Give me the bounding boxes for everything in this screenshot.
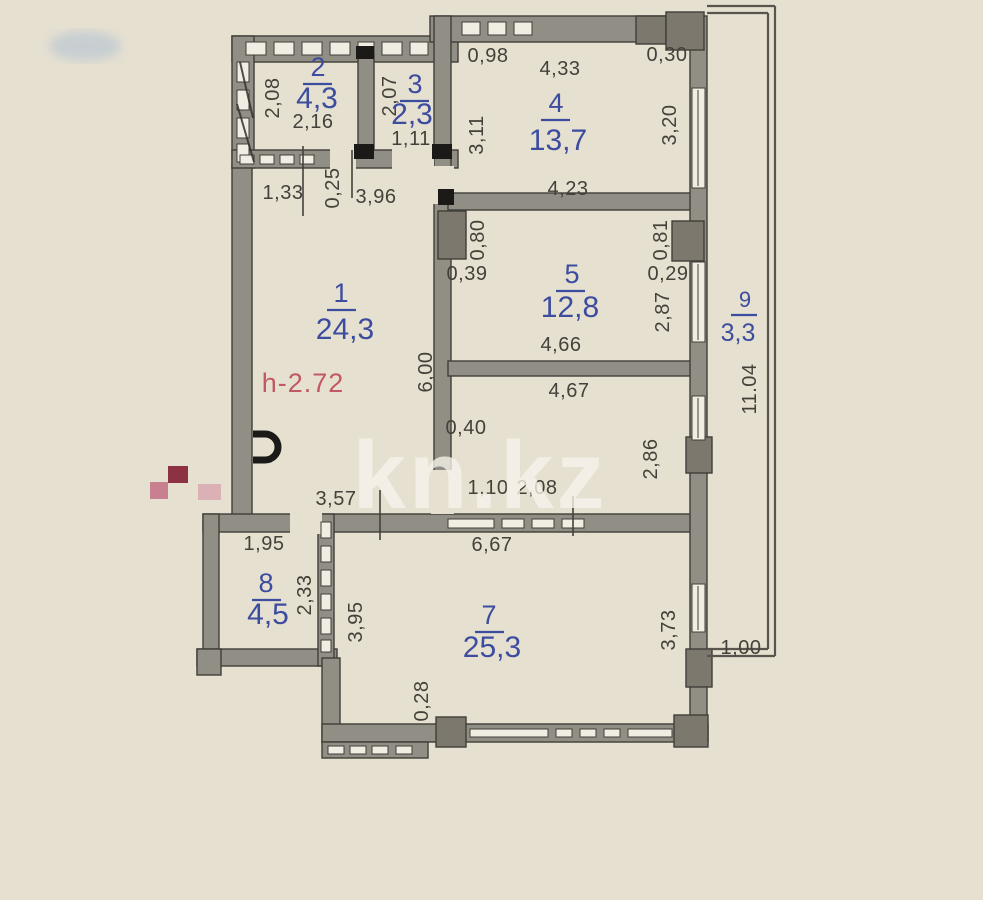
floor-plan: 1,33 3,96 2,16 1,11 0,98 4,33 0,30 4,23 … (0, 0, 983, 900)
dim-hall-w: 3,96 (356, 186, 397, 208)
room-1-area: 24,3 (316, 313, 374, 346)
dim-room3-w: 1,11 (391, 128, 430, 150)
scan-smudge (49, 31, 121, 61)
room-9-area: 3,3 (721, 319, 756, 347)
dim-hall-gap: 0,25 (322, 168, 344, 209)
room-9-number: 9 (739, 287, 751, 312)
dim-corridor-w-top: 4,67 (549, 380, 590, 402)
room-3-number: 3 (407, 69, 422, 99)
room-5-area: 12,8 (541, 291, 599, 324)
room-7-number: 7 (481, 600, 496, 630)
room-8-number: 8 (258, 568, 273, 598)
dim-room8-h-right: 2,33 (294, 575, 316, 616)
dim-top-right: 0,30 (647, 44, 688, 66)
dim-room7-offset: 0,28 (411, 681, 433, 722)
dim-top-left: 0,98 (468, 45, 509, 67)
room-1-number: 1 (333, 278, 348, 308)
dim-col5-right-h: 0,29 (648, 263, 689, 285)
room-2-number: 2 (310, 52, 325, 82)
dim-room4-h-left: 3,11 (466, 115, 488, 154)
wall-room8-foot (197, 649, 221, 675)
watermark: kn.kz (352, 422, 607, 529)
dim-col5-left-h: 0,39 (447, 263, 488, 285)
room-2-area: 4,3 (296, 82, 338, 115)
dim-room8-w-top: 1,95 (244, 533, 285, 555)
room-5-number: 5 (564, 259, 579, 289)
dim-room1-h-right: 6,00 (415, 352, 437, 393)
dim-col5-right-v: 0,81 (650, 220, 672, 261)
room-4-area: 13,7 (529, 124, 587, 157)
room-7-area: 25,3 (463, 631, 521, 664)
ceiling-height-note: h-2.72 (262, 368, 345, 398)
dim-room2-h: 2,08 (262, 78, 284, 119)
dim-room4-w-top: 4,33 (540, 58, 581, 80)
dim-room8-outer-v: 3,95 (345, 602, 367, 643)
dim-room7-w-top: 6,67 (472, 534, 513, 556)
room-8-area: 4,5 (247, 598, 289, 631)
dim-balcony-bottom-w: 1,00 (721, 637, 762, 659)
dim-room4-h-right: 3,20 (659, 105, 681, 146)
dim-room5-w-bottom: 4,66 (541, 334, 582, 356)
wall-left-room1 (232, 166, 252, 522)
room-3-area: 2,3 (391, 98, 433, 131)
wall-room5-corridor (448, 361, 702, 376)
dim-room5-h-right: 2,87 (652, 292, 674, 333)
room-4-number: 4 (548, 88, 563, 118)
dim-corridor-h-right: 2,86 (640, 439, 662, 480)
dim-col5-left-v: 0,80 (467, 220, 489, 261)
dim-hall-bottom-w: 3,57 (316, 488, 357, 510)
wall-divider-rooms-2-3 (358, 54, 374, 156)
dim-balcony-h: 11.04 (739, 363, 761, 414)
dim-room7-h-right: 3,73 (658, 610, 680, 651)
dim-hall-left: 1,33 (263, 182, 304, 204)
dim-room4-w-bottom: 4,23 (548, 178, 589, 200)
wall-room8-left (203, 514, 219, 666)
